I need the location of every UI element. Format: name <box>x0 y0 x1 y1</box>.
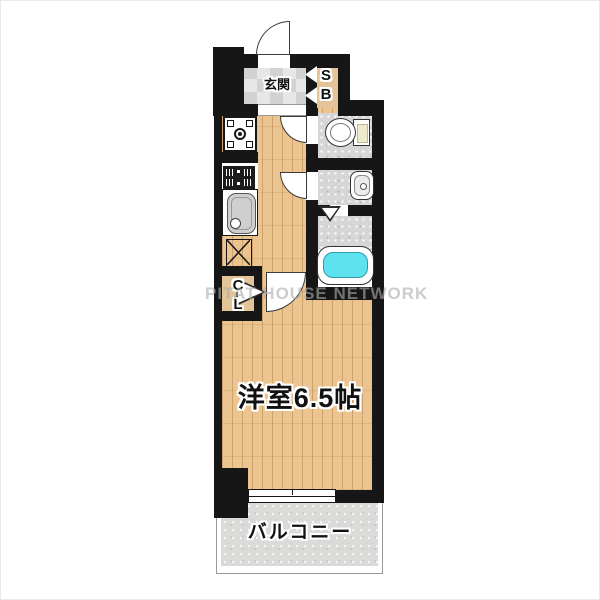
wall-segment <box>222 104 260 116</box>
bathtub-water <box>323 252 368 278</box>
floor-plan: 玄関 S B C L 洋室6.5帖 バルコニー PITAT HOUSE NETW… <box>0 0 600 600</box>
window-icon <box>248 489 336 503</box>
wall-segment <box>306 108 318 116</box>
toilet-door-opening <box>306 116 318 144</box>
kitchen-sink-icon <box>227 193 256 234</box>
washing-machine-pan-icon <box>223 116 257 152</box>
entrance-label: 玄関 <box>252 78 302 92</box>
entrance-door-arc-icon <box>256 21 290 55</box>
wall-segment <box>244 54 258 68</box>
washroom-door-opening <box>306 172 318 200</box>
washbasin-icon <box>350 171 374 200</box>
wall-segment <box>214 468 248 518</box>
faucet-icon <box>230 218 241 229</box>
kitchen-counter <box>222 189 258 236</box>
wall-segment <box>214 152 258 163</box>
refrigerator-space-icon <box>226 239 252 267</box>
shoe-box-label: S B <box>314 66 338 104</box>
wall-segment <box>312 158 372 170</box>
bathroom-floor <box>318 216 372 250</box>
toilet-icon <box>325 118 356 147</box>
wall-segment <box>348 205 372 216</box>
bathtub-icon <box>317 246 374 285</box>
main-room-label: 洋室6.5帖 <box>202 384 398 414</box>
drain-icon <box>360 183 367 190</box>
stove-icon <box>223 166 255 189</box>
entrance-step <box>258 104 306 116</box>
entrance-door-opening <box>258 54 290 68</box>
watermark: PITAT HOUSE NETWORK <box>205 284 395 304</box>
wall-segment <box>336 490 384 503</box>
balcony-label: バルコニー <box>220 523 380 544</box>
